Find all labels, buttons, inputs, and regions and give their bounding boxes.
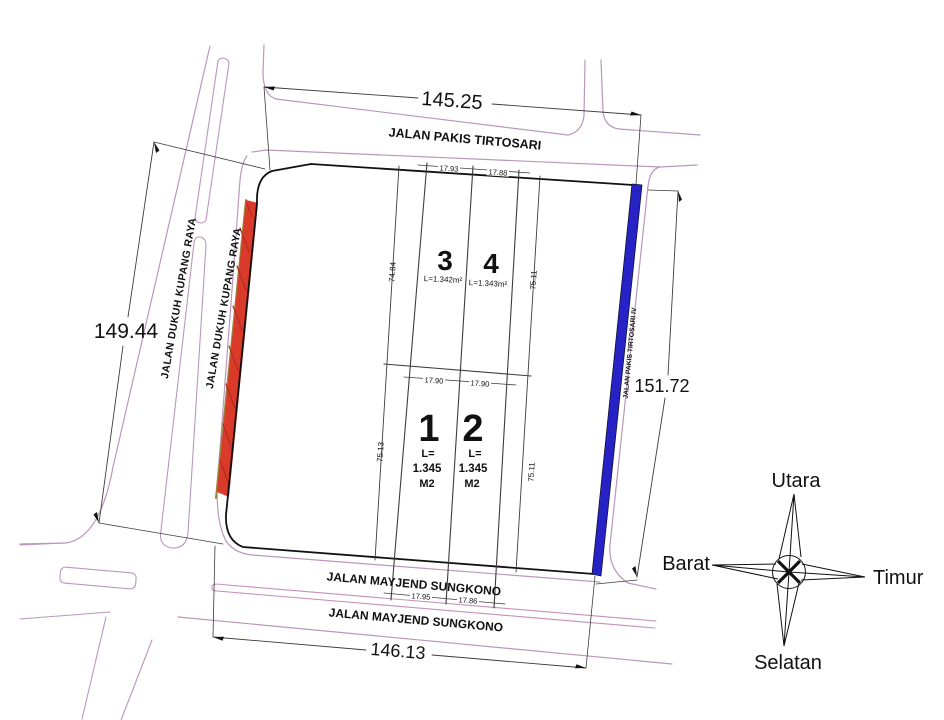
- svg-text:L=: L=: [421, 448, 434, 460]
- svg-text:17.86: 17.86: [458, 595, 477, 605]
- svg-text:17.93: 17.93: [439, 163, 458, 173]
- svg-text:3: 3: [437, 245, 453, 276]
- svg-text:M2: M2: [419, 478, 434, 490]
- svg-text:17.90: 17.90: [470, 378, 489, 388]
- svg-text:Timur: Timur: [873, 567, 924, 589]
- svg-text:75.11: 75.11: [528, 269, 538, 290]
- svg-text:Utara: Utara: [772, 470, 822, 492]
- svg-text:1.345: 1.345: [459, 463, 488, 475]
- svg-text:74.84: 74.84: [387, 261, 397, 282]
- svg-text:17.88: 17.88: [488, 167, 507, 177]
- svg-text:Selatan: Selatan: [754, 652, 822, 674]
- svg-text:75.11: 75.11: [526, 461, 536, 482]
- svg-text:145.25: 145.25: [421, 88, 484, 114]
- svg-text:17.90: 17.90: [424, 375, 443, 385]
- svg-text:1: 1: [418, 408, 439, 450]
- svg-text:75.13: 75.13: [375, 441, 385, 462]
- svg-text:151.72: 151.72: [634, 376, 689, 396]
- svg-text:1.345: 1.345: [413, 463, 442, 475]
- svg-text:4: 4: [483, 248, 499, 279]
- svg-text:17.95: 17.95: [411, 591, 430, 601]
- svg-text:Barat: Barat: [662, 553, 710, 575]
- svg-text:149.44: 149.44: [94, 320, 159, 343]
- svg-text:M2: M2: [464, 478, 479, 490]
- svg-text:L=: L=: [468, 448, 481, 460]
- svg-text:2: 2: [462, 408, 483, 450]
